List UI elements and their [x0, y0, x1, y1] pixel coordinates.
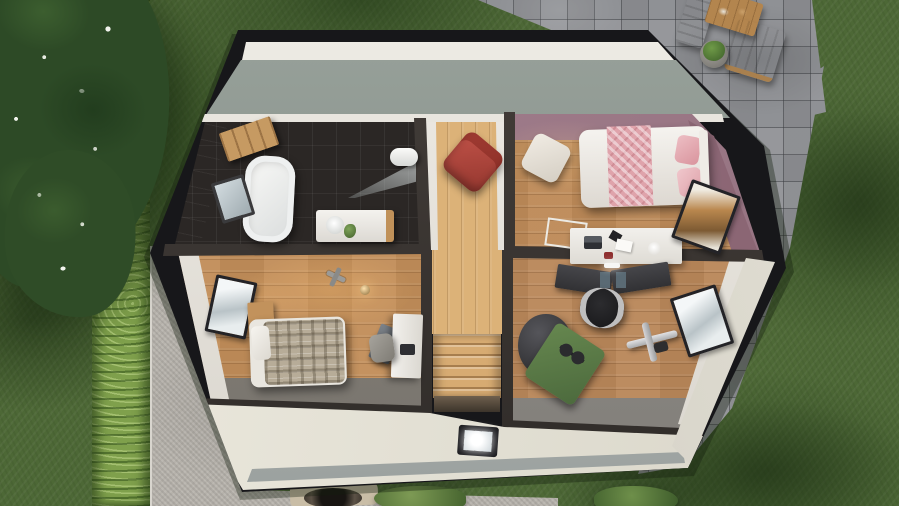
- pink-bed-pillow: [674, 134, 702, 166]
- pink-bed-blanket: [607, 125, 654, 206]
- floor-plan-scene: [0, 0, 899, 506]
- desk-monitor: [400, 344, 415, 355]
- plaid-pillow: [251, 325, 272, 360]
- desk-monitors: [596, 272, 630, 288]
- grey-desk-chair: [368, 332, 396, 363]
- staircase-lower-shadow: [434, 396, 500, 412]
- floor-lamp: [360, 285, 370, 295]
- skylight-glass: [463, 430, 492, 452]
- desk-led-strip: [604, 263, 620, 268]
- staircase-steps: [433, 334, 501, 398]
- laptop: [584, 236, 602, 249]
- plaid-duvet: [263, 319, 345, 386]
- desk-plate: [648, 242, 661, 255]
- red-pouch: [604, 252, 613, 259]
- toilet: [390, 148, 418, 166]
- vanity-basin: [326, 216, 344, 234]
